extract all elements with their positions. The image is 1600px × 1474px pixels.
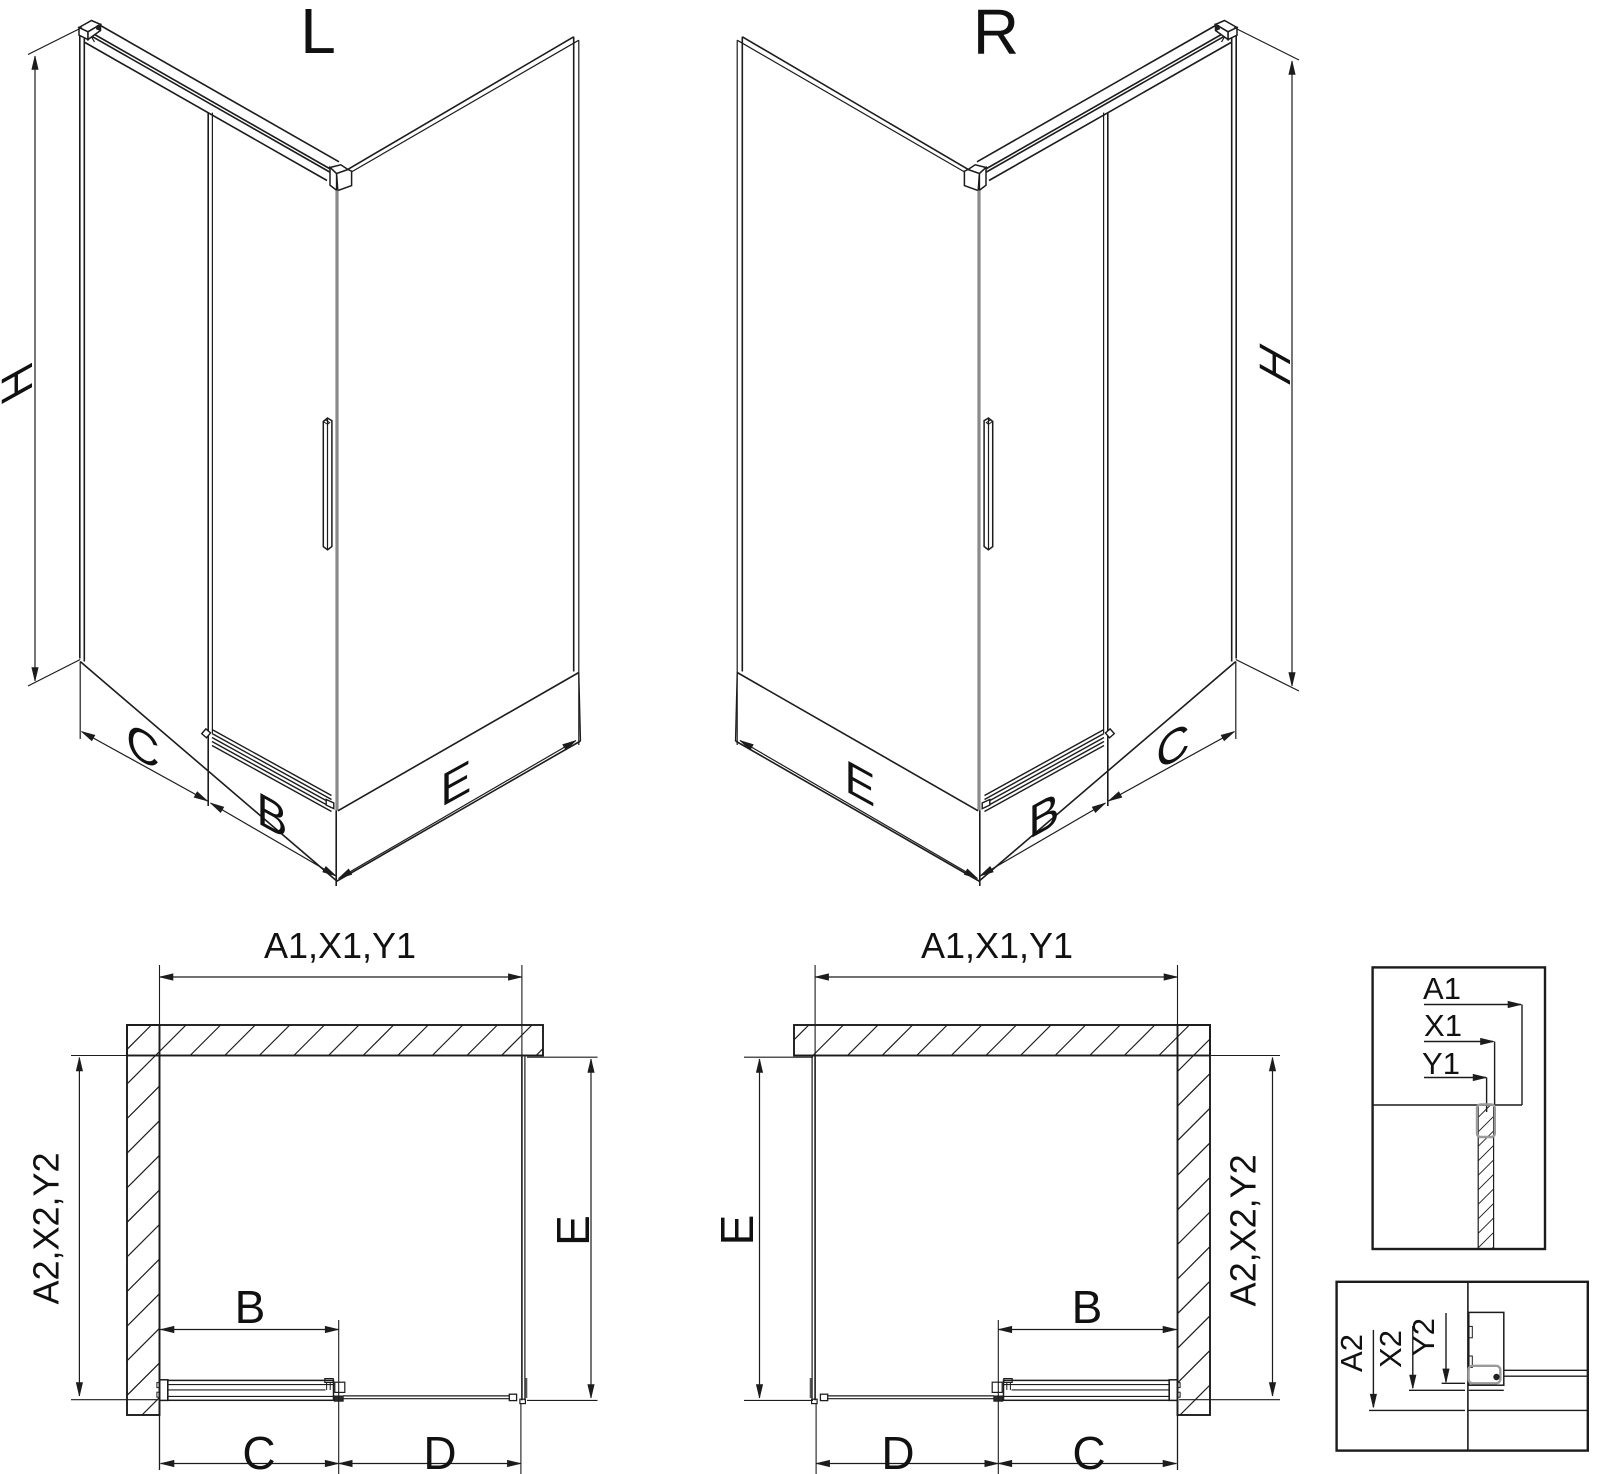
svg-text:B: B: [235, 1281, 266, 1333]
svg-text:A2,X2,Y2: A2,X2,Y2: [26, 1152, 67, 1304]
svg-text:D: D: [881, 1427, 914, 1474]
svg-text:A1: A1: [1423, 971, 1461, 1006]
svg-text:D: D: [423, 1427, 456, 1474]
svg-text:E: E: [547, 1215, 599, 1246]
svg-text:Y1: Y1: [1422, 1046, 1460, 1081]
svg-text:B: B: [1072, 1281, 1103, 1333]
svg-text:A2,X2,Y2: A2,X2,Y2: [1223, 1154, 1264, 1306]
svg-text:A1,X1,Y1: A1,X1,Y1: [921, 925, 1073, 966]
svg-text:Y2: Y2: [1406, 1318, 1441, 1356]
svg-text:R: R: [973, 0, 1019, 68]
svg-text:C: C: [242, 1427, 275, 1474]
svg-text:E: E: [711, 1215, 763, 1246]
svg-text:A2: A2: [1334, 1334, 1369, 1372]
svg-text:X1: X1: [1424, 1008, 1462, 1043]
svg-text:C: C: [1072, 1427, 1105, 1474]
svg-text:L: L: [300, 0, 336, 67]
svg-text:X2: X2: [1373, 1330, 1408, 1368]
svg-text:A1,X1,Y1: A1,X1,Y1: [264, 925, 416, 966]
